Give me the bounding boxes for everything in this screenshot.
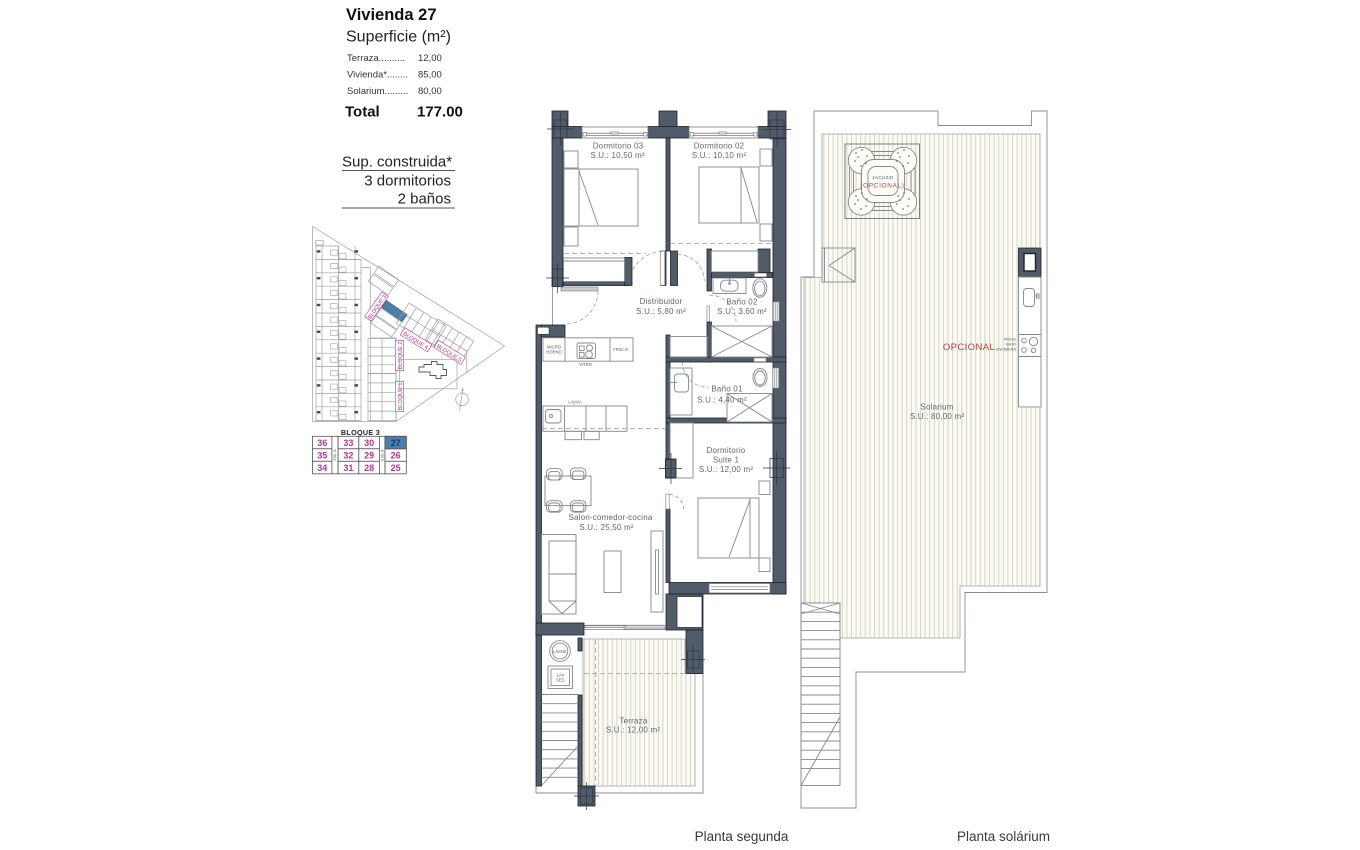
- svg-text:Total: Total: [345, 104, 380, 121]
- svg-text:31: 31: [343, 463, 353, 473]
- svg-text:Solarium: Solarium: [920, 403, 953, 412]
- svg-text:29: 29: [364, 450, 374, 460]
- svg-text:177.00: 177.00: [417, 104, 463, 121]
- svg-text:ENCIMERA: ENCIMERA: [996, 348, 1017, 352]
- svg-text:Dormitorio 02: Dormitorio 02: [694, 142, 745, 151]
- svg-text:BLOQUE 2: BLOQUE 2: [398, 342, 404, 370]
- svg-text:Sup. construida*: Sup. construida*: [342, 154, 452, 171]
- svg-text:Vivienda*........: Vivienda*........: [347, 70, 408, 81]
- svg-text:35: 35: [317, 450, 327, 460]
- svg-text:FRIGO: FRIGO: [1004, 338, 1016, 342]
- svg-text:Solarium.........: Solarium.........: [347, 86, 408, 97]
- svg-text:S.U.: 12,00 m²: S.U.: 12,00 m²: [699, 465, 754, 474]
- svg-text:S.U.: 3,60 m²: S.U.: 3,60 m²: [717, 307, 767, 316]
- svg-text:36: 36: [317, 438, 327, 448]
- svg-text:JACUZZI: JACUZZI: [872, 175, 894, 180]
- svg-text:34: 34: [317, 463, 327, 473]
- svg-text:26: 26: [391, 450, 401, 460]
- svg-text:Vivienda 27: Vivienda 27: [346, 6, 437, 24]
- svg-text:12,00: 12,00: [418, 53, 442, 64]
- svg-text:S.U.: 10,10 m²: S.U.: 10,10 m²: [692, 151, 747, 160]
- svg-text:Distribuidor: Distribuidor: [640, 297, 683, 306]
- svg-text:BLOQUE 3: BLOQUE 3: [341, 428, 380, 437]
- svg-text:S.U.: 12,00 m²: S.U.: 12,00 m²: [606, 726, 661, 735]
- svg-text:80,00: 80,00: [418, 86, 442, 97]
- svg-text:27: 27: [391, 438, 401, 448]
- svg-text:Dormitorio: Dormitorio: [707, 446, 746, 455]
- svg-text:33: 33: [343, 438, 353, 448]
- svg-text:Dormitorio 03: Dormitorio 03: [593, 142, 644, 151]
- svg-text:Terraza..........: Terraza..........: [347, 53, 405, 64]
- svg-text:Planta solárium: Planta solárium: [957, 829, 1050, 844]
- svg-text:Baño 01: Baño 01: [711, 385, 743, 394]
- svg-text:SEC: SEC: [556, 678, 565, 683]
- svg-text:S.U.: 5,80 m²: S.U.: 5,80 m²: [636, 307, 686, 316]
- svg-text:ESC. B: ESC. B: [380, 449, 384, 461]
- svg-text:Salon-comedor-cocina: Salon-comedor-cocina: [568, 513, 652, 522]
- svg-text:OPCIONAL: OPCIONAL: [943, 342, 995, 353]
- svg-text:(OPCIONAL): (OPCIONAL): [860, 183, 904, 190]
- svg-text:BAJO: BAJO: [1006, 343, 1016, 347]
- svg-text:Baño 02: Baño 02: [726, 298, 758, 307]
- svg-text:2 baños: 2 baños: [398, 191, 451, 208]
- svg-text:FRIG-O: FRIG-O: [613, 347, 628, 352]
- svg-text:HORNO: HORNO: [546, 350, 562, 355]
- svg-text:VITRO: VITRO: [579, 362, 593, 367]
- svg-text:S.U.: 4,40 m²: S.U.: 4,40 m²: [697, 396, 747, 405]
- svg-text:Superficie (m²): Superficie (m²): [346, 29, 451, 46]
- svg-text:Suite 1: Suite 1: [713, 456, 740, 465]
- svg-text:S.U.: 80,00 m²: S.U.: 80,00 m²: [910, 412, 965, 421]
- svg-text:ESC. A: ESC. A: [333, 449, 337, 461]
- svg-text:Terraza: Terraza: [619, 717, 647, 726]
- svg-text:Planta segunda: Planta segunda: [695, 829, 789, 844]
- svg-text:30: 30: [364, 438, 374, 448]
- svg-text:28: 28: [364, 463, 374, 473]
- svg-text:BLOQUE 1: BLOQUE 1: [398, 383, 404, 411]
- svg-text:85,00: 85,00: [418, 70, 442, 81]
- svg-text:25: 25: [391, 463, 401, 473]
- svg-text:LAVAD.: LAVAD.: [553, 649, 567, 654]
- svg-text:S.U.: 10,50 m²: S.U.: 10,50 m²: [590, 151, 645, 160]
- svg-text:S.U.: 25,50 m²: S.U.: 25,50 m²: [579, 523, 634, 532]
- svg-text:LAVAV.: LAVAV.: [568, 400, 581, 405]
- svg-text:3 dormitorios: 3 dormitorios: [364, 173, 451, 190]
- svg-text:32: 32: [343, 450, 353, 460]
